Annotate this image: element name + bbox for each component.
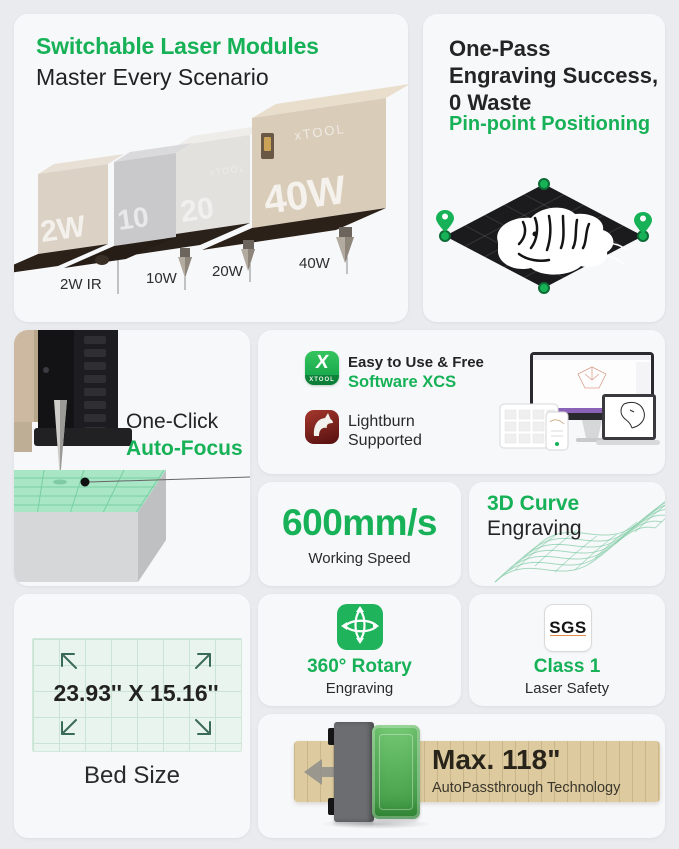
- speed-label: Working Speed: [258, 550, 461, 567]
- laser-head: [14, 330, 132, 452]
- caption-line: One-Click: [126, 408, 243, 435]
- module-callout-label: 10W: [146, 270, 177, 287]
- curve-subtitle: Engraving: [487, 517, 582, 541]
- card-switchable-laser-modules: Switchable Laser Modules Master Every Sc…: [14, 14, 408, 322]
- safety-title: Class 1: [469, 656, 665, 678]
- lightburn-horse-glyph: [305, 410, 339, 444]
- speed-value: 600mm/s: [258, 502, 461, 544]
- card-highlight: Pin-point Positioning: [449, 113, 650, 136]
- lightburn-caption-line: Supported: [348, 432, 422, 450]
- xcs-caption-line: Easy to Use & Free: [348, 354, 484, 371]
- phone: [546, 412, 568, 450]
- xcs-brand-text: XTOOL: [305, 375, 339, 385]
- devices-mockup: [496, 352, 661, 454]
- rotary-subtitle: Engraving: [258, 680, 461, 697]
- map-pin-icon: [436, 210, 454, 232]
- module-2w-box: 2W: [14, 154, 124, 276]
- probe-shadow: [53, 480, 67, 485]
- card-software: X XTOOL Easy to Use & Free Software XCS …: [258, 330, 665, 474]
- xcs-x-logo: X: [303, 352, 340, 374]
- card-auto-focus: One-Click Auto-Focus: [14, 330, 250, 586]
- passthrough-subtitle: AutoPassthrough Technology: [432, 780, 620, 796]
- card-working-speed: 600mm/s Working Speed: [258, 482, 461, 586]
- rotary-title: 360° Rotary: [258, 656, 461, 678]
- xcs-app-icon: X XTOOL: [305, 351, 339, 385]
- lightburn-caption-line: Lightburn: [348, 413, 415, 431]
- card-passthrough: Max. 118" AutoPassthrough Technology: [258, 714, 665, 838]
- auto-focus-caption: One-Click Auto-Focus: [126, 408, 243, 462]
- passthrough-machine-body: [334, 722, 374, 822]
- map-pin-icon: [634, 212, 652, 234]
- sgs-certification-badge: SGS: [544, 604, 592, 652]
- bed-size-label: Bed Size: [14, 762, 250, 790]
- pinpoint-positioning-illustration: [423, 160, 665, 322]
- card-one-pass-engraving: One-Pass Engraving Success, 0 Waste Pin-…: [423, 14, 665, 322]
- laptop: [596, 394, 660, 445]
- module-face-label: 10: [116, 201, 151, 236]
- lightburn-icon: [305, 410, 339, 444]
- module-face-label: 2W: [38, 210, 88, 249]
- card-3d-curve: 3D Curve Engraving: [469, 482, 665, 586]
- module-callout-label: 2W IR: [60, 276, 102, 293]
- cover-inner-panel: [379, 734, 413, 810]
- product-infographic: Switchable Laser Modules Master Every Sc…: [0, 0, 679, 849]
- bed-dimensions: 23.93'' X 15.16'': [32, 680, 240, 707]
- card-title-line: Engraving Success,: [449, 63, 658, 89]
- passthrough-machine-cover: [372, 725, 420, 819]
- module-face-label: 20: [178, 192, 216, 229]
- card-title-line: One-Pass: [449, 36, 551, 62]
- caption-line: Auto-Focus: [126, 435, 243, 462]
- card-rotary: 360° Rotary Engraving: [258, 594, 461, 706]
- module-callout-label: 20W: [212, 263, 243, 280]
- card-bed-size: 23.93'' X 15.16'' Bed Size: [14, 594, 250, 838]
- sgs-logo-underline: [550, 635, 586, 636]
- card-laser-safety: SGS Class 1 Laser Safety: [469, 594, 665, 706]
- safety-subtitle: Laser Safety: [469, 680, 665, 697]
- material-block: [14, 470, 166, 582]
- curve-title: 3D Curve: [487, 492, 579, 516]
- xcs-caption-line: Software XCS: [348, 373, 456, 392]
- module-callout-label: 40W: [299, 255, 330, 272]
- rotary-icon: [337, 604, 383, 650]
- passthrough-title: Max. 118": [432, 744, 560, 776]
- module-2w-lens: [95, 255, 109, 265]
